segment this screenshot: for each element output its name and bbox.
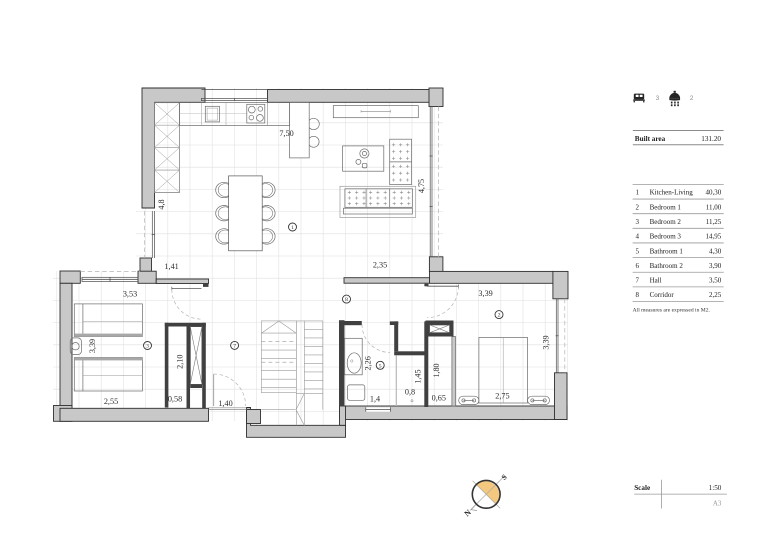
- svg-text:Bathroom 1: Bathroom 1: [650, 247, 684, 255]
- svg-text:3,50: 3,50: [709, 277, 722, 285]
- svg-text:14,95: 14,95: [706, 233, 722, 241]
- svg-text:2: 2: [498, 313, 501, 319]
- svg-text:40,30: 40,30: [706, 189, 722, 197]
- svg-text:0,58: 0,58: [168, 394, 182, 403]
- svg-text:1,40: 1,40: [218, 399, 232, 408]
- svg-text:2,35: 2,35: [373, 260, 387, 269]
- svg-text:1: 1: [291, 225, 294, 231]
- svg-text:2,26: 2,26: [363, 356, 372, 370]
- svg-text:2,55: 2,55: [104, 397, 118, 406]
- svg-text:4,75: 4,75: [417, 179, 426, 193]
- svg-text:3,90: 3,90: [709, 262, 722, 270]
- svg-text:0,8: 0,8: [405, 387, 415, 396]
- svg-text:Corridor: Corridor: [650, 291, 675, 299]
- svg-text:Bedroom 3: Bedroom 3: [650, 233, 682, 241]
- svg-text:Built area: Built area: [635, 135, 666, 143]
- svg-text:Kitchen-Living: Kitchen-Living: [650, 189, 694, 197]
- svg-text:3: 3: [146, 344, 149, 350]
- svg-text:2: 2: [690, 95, 694, 102]
- svg-text:1,41: 1,41: [164, 262, 178, 271]
- svg-text:4,30: 4,30: [709, 247, 722, 255]
- svg-text:5: 5: [636, 247, 640, 255]
- svg-text:3,39: 3,39: [478, 289, 492, 298]
- svg-text:1,45: 1,45: [414, 369, 423, 383]
- svg-text:7,50: 7,50: [279, 129, 293, 138]
- svg-text:Bedroom 1: Bedroom 1: [650, 203, 682, 211]
- svg-text:2,75: 2,75: [495, 392, 509, 401]
- svg-text:5: 5: [379, 363, 382, 369]
- svg-text:2,10: 2,10: [175, 355, 184, 369]
- svg-text:1:50: 1:50: [709, 484, 722, 492]
- svg-text:8: 8: [636, 291, 640, 299]
- svg-text:A3: A3: [713, 500, 722, 508]
- svg-text:4,8: 4,8: [157, 199, 166, 209]
- svg-text:3: 3: [656, 95, 660, 102]
- svg-text:3,39: 3,39: [542, 335, 551, 349]
- svg-text:All measures are expressed in: All measures are expressed in M2.: [633, 308, 711, 314]
- svg-text:2: 2: [636, 203, 640, 211]
- svg-text:3,39: 3,39: [88, 339, 97, 353]
- svg-text:Bedroom 2: Bedroom 2: [650, 218, 682, 226]
- svg-text:8: 8: [345, 297, 348, 303]
- svg-text:6: 6: [636, 262, 640, 270]
- svg-text:3,53: 3,53: [123, 289, 137, 298]
- svg-text:131.20: 131.20: [701, 135, 721, 143]
- svg-text:1: 1: [636, 189, 640, 197]
- svg-text:1,80: 1,80: [432, 363, 441, 377]
- svg-text:Scale: Scale: [634, 484, 650, 492]
- svg-text:11,00: 11,00: [706, 203, 722, 211]
- svg-text:1,4: 1,4: [370, 395, 380, 404]
- svg-text:0,65: 0,65: [432, 393, 446, 402]
- svg-text:4: 4: [636, 233, 640, 241]
- svg-text:Bathroom 2: Bathroom 2: [650, 262, 684, 270]
- svg-text:3: 3: [636, 218, 640, 226]
- svg-text:2,25: 2,25: [709, 291, 722, 299]
- svg-text:7: 7: [233, 343, 236, 349]
- svg-text:7: 7: [636, 277, 640, 285]
- svg-text:11,25: 11,25: [706, 218, 722, 226]
- svg-text:Hall: Hall: [650, 277, 662, 285]
